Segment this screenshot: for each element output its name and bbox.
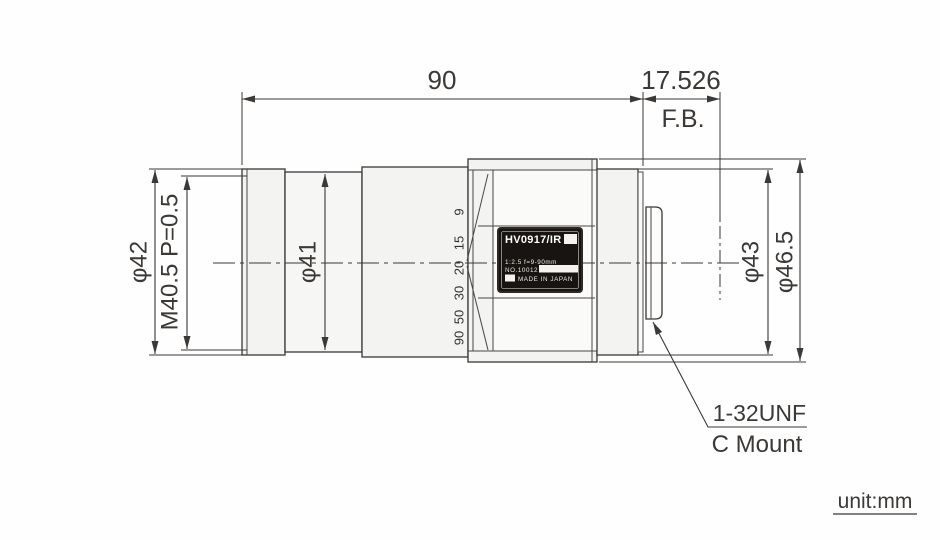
zoom-scale-number: 50 xyxy=(452,310,467,324)
nameplate-origin-box xyxy=(505,275,515,282)
unit-note: unit:mm xyxy=(833,490,917,514)
front-ring-section xyxy=(242,169,285,355)
nameplate-serial-box xyxy=(539,265,578,273)
nameplate-origin: MADE IN JAPAN xyxy=(518,276,573,283)
overall-length-value: 90 xyxy=(428,65,457,95)
rear-diameter-value: φ43 xyxy=(738,241,765,283)
mount-name-label: C Mount xyxy=(712,431,803,458)
zoom-scale-number: 20 xyxy=(452,261,467,275)
dimension-overall-length: 90 xyxy=(242,65,643,166)
drawing-canvas: 9 15 20 30 50 90 HV0917/IR 1:2.5 f=9-90m… xyxy=(0,0,940,540)
zoom-scale-number: 90 xyxy=(452,331,467,345)
filter-thread-value: M40.5 P=0.5 xyxy=(157,194,184,331)
nameplate-logo-box xyxy=(564,234,577,244)
zoom-scale-number: 15 xyxy=(452,236,467,250)
mount-thread-label: 1-32UNF xyxy=(713,400,806,426)
mid-diameter-value: φ41 xyxy=(295,241,322,283)
front-diameter-value: φ42 xyxy=(126,241,153,283)
rear-barrel-section xyxy=(597,169,638,355)
flange-back-label: F.B. xyxy=(661,105,704,133)
lens-technical-drawing: 9 15 20 30 50 90 HV0917/IR 1:2.5 f=9-90m… xyxy=(0,0,940,540)
unit-note-text: unit:mm xyxy=(838,490,913,513)
nameplate-model: HV0917/IR xyxy=(505,234,562,246)
flange-back-value: 17.526 xyxy=(641,65,721,95)
zoom-scale-number: 30 xyxy=(452,286,467,300)
ring-diameter-value: φ46.5 xyxy=(772,231,799,293)
nameplate-spec: 1:2.5 f=9-90mm xyxy=(505,259,557,266)
zoom-scale-number: 9 xyxy=(452,208,467,215)
nameplate: HV0917/IR 1:2.5 f=9-90mm NO.10012 MADE I… xyxy=(498,228,582,292)
dimension-front-diameter: φ42 xyxy=(126,169,244,355)
rear-flange-plate xyxy=(638,172,643,352)
nameplate-serial: NO.10012 xyxy=(505,267,538,274)
c-mount-callout: 1-32UNF C Mount xyxy=(653,322,807,458)
